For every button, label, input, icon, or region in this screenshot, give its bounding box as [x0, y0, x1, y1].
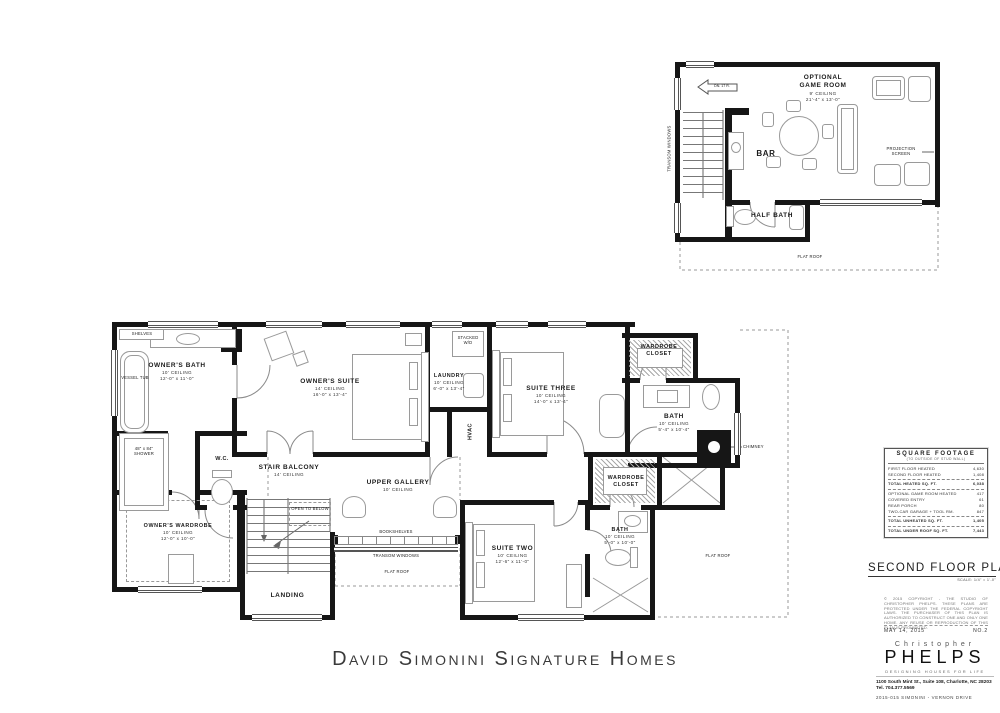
headboard	[421, 352, 429, 442]
architect-last-name: PHELPS	[876, 648, 994, 667]
wall	[725, 237, 810, 242]
plan-title-block: SECOND FLOOR PLAN SCALE: 1/4" = 1'-0"	[868, 562, 996, 582]
wall	[588, 505, 610, 510]
architect-logo: Christopher PHELPS DESIGNING HOUSES FOR …	[876, 641, 994, 700]
wall	[935, 62, 940, 207]
armchair	[433, 496, 457, 518]
sofa-cushion	[876, 80, 901, 96]
room-label-owners-bath: OWNER'S BATH 10' CEILING 12'-0" x 11'-0"	[148, 362, 206, 382]
wall	[195, 431, 200, 510]
sofa-cushion	[841, 108, 854, 170]
window	[346, 321, 400, 328]
flat-roof-label: FLAT ROOF	[688, 553, 748, 558]
wall	[195, 431, 247, 436]
window	[518, 614, 584, 621]
stacked-wd-label: STACKED W/D	[452, 335, 484, 346]
shelves-label: SHELVES	[120, 331, 164, 336]
wall	[330, 532, 335, 620]
wall	[585, 505, 590, 530]
shower-label: 48" x 84" SHOWER	[124, 446, 164, 457]
room-label-landing: LANDING	[250, 592, 325, 600]
flat-roof-label: FLAT ROOF	[780, 254, 840, 259]
window	[548, 321, 586, 328]
pillow	[409, 398, 418, 426]
wall	[666, 378, 740, 383]
sink	[657, 390, 678, 403]
sqft-row: SECOND FLOOR HEATED1,408	[888, 472, 984, 478]
pillow	[476, 562, 485, 588]
transom-windows-vertical-label: TRANSOM WINDOWS	[666, 119, 671, 179]
room-label-laundry: LAUNDRY 10' CEILING 6'-0" x 13'-4"	[423, 373, 475, 392]
chimney-label: CHIMNEY	[743, 444, 781, 449]
transom-windows-label: TRANSOM WINDOWS	[356, 553, 436, 558]
room-label-wardrobe-closet-lower: WARDROBE CLOSET	[594, 475, 658, 489]
wall	[487, 452, 547, 457]
room-label-hvac: HVAC	[467, 416, 474, 448]
pillow	[409, 362, 418, 390]
room-label-bath-lower: BATH 10' CEILING 5'-0" x 10'-0"	[592, 527, 648, 546]
chimney-box	[697, 430, 731, 464]
window	[734, 413, 741, 455]
open-to-below-label: OPEN TO BELOW	[290, 506, 330, 511]
armchair	[904, 162, 930, 186]
window	[138, 586, 202, 593]
room-label-suite-three: SUITE THREE 10' CEILING 14'-0" x 13'-4"	[505, 385, 597, 405]
toilet-tank	[726, 206, 734, 227]
headboard	[492, 350, 500, 438]
bench	[566, 564, 582, 608]
sink	[624, 515, 641, 527]
bookshelves-unit	[334, 536, 458, 545]
transom-window-band	[334, 547, 458, 552]
window	[148, 321, 218, 328]
wall	[675, 237, 730, 242]
date-row: MAY 14, 2015 NO.2	[884, 625, 988, 634]
sink	[176, 333, 200, 345]
toilet-tank	[630, 547, 638, 568]
chaise	[599, 394, 625, 438]
window	[674, 78, 681, 110]
toilet	[211, 479, 233, 505]
room-label-owners-wardrobe: OWNER'S WARDROBE 10' CEILING 12'-0" x 10…	[143, 523, 213, 542]
room-label-stair-balcony: STAIR BALCONY 14' CEILING	[244, 464, 334, 478]
plan-date: MAY 14, 2015	[884, 628, 925, 634]
window	[674, 203, 681, 233]
window	[820, 199, 922, 206]
room-label-bar: BAR	[748, 149, 784, 159]
wall	[730, 200, 750, 205]
wall	[725, 108, 749, 115]
nightstand	[405, 333, 422, 346]
wall	[313, 452, 430, 457]
window	[266, 321, 322, 328]
sqft-row-total: TOTAL UNHEATED SQ. FT.1,405	[888, 516, 984, 524]
sqft-row-total: TOTAL HEATED SQ. FT.6,038	[888, 479, 984, 487]
wall	[578, 500, 590, 505]
floor-plan-sheet: OWNER'S BATH 10' CEILING 12'-0" x 11'-0"…	[0, 0, 1000, 713]
wall	[622, 333, 698, 338]
wall	[693, 333, 698, 383]
room-label-wc: W.C.	[206, 456, 238, 463]
sheet-number: NO.2	[973, 628, 988, 634]
toilet-tank	[212, 470, 232, 478]
wall	[447, 412, 452, 457]
sqft-row: OPTIONAL GAME ROOM HEATED417	[888, 489, 984, 497]
project-job-number: 2015-015 SIMONINI - VERNON DRIVE	[876, 695, 994, 700]
wall	[675, 62, 940, 67]
project-title: David Simonini Signature Homes	[200, 648, 810, 671]
closet-island	[168, 554, 194, 584]
vessel-tub-inner	[124, 355, 145, 429]
armchair	[874, 164, 901, 186]
bookshelves-label: BOOKSHELVES	[361, 529, 431, 534]
wall	[805, 200, 810, 242]
wall	[240, 495, 245, 620]
window	[252, 614, 322, 621]
room-label-owners-suite: OWNER'S SUITE 14' CEILING 16'-0" x 13'-4…	[275, 378, 385, 398]
plan-scale: SCALE: 1/4" = 1'-0"	[868, 578, 996, 582]
room-label-wardrobe-closet-upper: WARDROBE CLOSET	[627, 344, 691, 358]
room-label-suite-two: SUITE TWO 10' CEILING 12'-6" x 11'-0"	[470, 545, 555, 565]
armchair	[342, 496, 366, 518]
wall	[622, 378, 640, 383]
wall	[232, 398, 237, 457]
dn-note-label: DN. 17 R.	[707, 84, 737, 89]
wall	[657, 505, 725, 510]
sqft-subtitle: (TO OUTSIDE OF STUD WALL)	[888, 457, 984, 464]
window	[111, 350, 118, 416]
wall	[428, 407, 492, 412]
pillow	[503, 358, 512, 386]
sqft-row: TWO-CAR GARAGE + TOOL RM.847	[888, 509, 984, 515]
game-table	[779, 116, 819, 156]
wall	[584, 452, 662, 457]
square-footage-table: SQUARE FOOTAGE (TO OUTSIDE OF STUD WALL)…	[884, 448, 988, 538]
armchair	[908, 76, 931, 102]
window	[432, 321, 462, 328]
wall	[460, 500, 554, 505]
room-label-bath-upper: BATH 10' CEILING 5'-4" x 10'-4"	[644, 413, 704, 433]
wall	[237, 452, 267, 457]
room-label-half-bath: HALF BATH	[744, 212, 800, 220]
plan-title: SECOND FLOOR PLAN	[868, 562, 996, 577]
bar-sink	[731, 142, 741, 153]
window	[496, 321, 528, 328]
chair	[822, 124, 834, 139]
wall	[585, 554, 590, 597]
chair	[802, 158, 817, 170]
room-label-game-room: OPTIONAL GAME ROOM 9' CEILING 21'-4" x 1…	[794, 74, 852, 103]
toilet	[605, 549, 631, 566]
room-label-upper-gallery: UPPER GALLERY 10' CEILING	[350, 479, 446, 493]
wall	[650, 505, 655, 620]
chair	[762, 112, 774, 127]
window	[686, 61, 714, 68]
architect-address: 1100 South Mint St., Suite 108, Charlott…	[876, 680, 994, 693]
flat-roof-label: FLAT ROOF	[367, 569, 427, 574]
game-room-stairs	[683, 112, 723, 199]
architect-tagline: DESIGNING HOUSES FOR LIFE	[876, 669, 994, 677]
projection-screen-label: PROJECTION SCREEN	[880, 146, 922, 157]
vessel-tub-label: VESSEL TUB	[120, 375, 150, 380]
toilet	[702, 384, 720, 410]
sqft-row-total: TOTAL UNDER ROOF SQ. FT.7,443	[888, 526, 984, 534]
